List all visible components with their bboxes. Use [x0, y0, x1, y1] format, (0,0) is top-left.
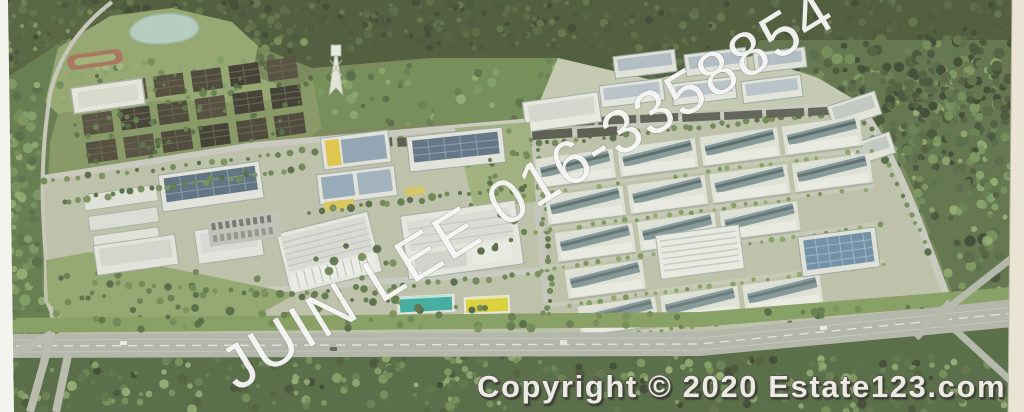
svg-text:Copyright © 2020 Estate123.com: Copyright © 2020 Estate123.com: [477, 369, 1006, 404]
